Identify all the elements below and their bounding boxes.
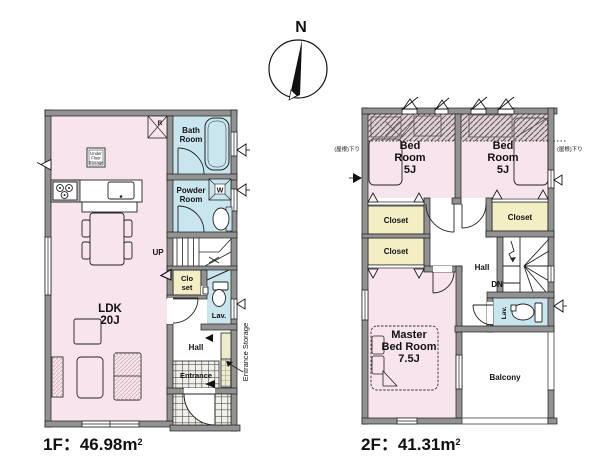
svg-text:7.5J: 7.5J (398, 353, 419, 365)
svg-text:Room: Room (180, 195, 203, 204)
svg-text:Closet: Closet (508, 213, 533, 222)
svg-text:Storage: Storage (89, 160, 104, 165)
svg-text:UP: UP (152, 248, 164, 257)
svg-text:Room: Room (394, 152, 425, 164)
svg-text:W: W (217, 188, 224, 195)
svg-text:(屋根)下り: (屋根)下り (557, 145, 583, 153)
svg-text:Closet: Closet (384, 247, 409, 256)
svg-text:Lav.: Lav. (501, 307, 508, 320)
svg-text:2F：41.31m2: 2F：41.31m2 (361, 435, 461, 454)
svg-text:20J: 20J (100, 315, 119, 327)
svg-text:Entrance: Entrance (180, 371, 212, 380)
svg-text:Master: Master (391, 329, 427, 341)
svg-text:5J: 5J (497, 164, 509, 176)
svg-text:R: R (158, 120, 163, 127)
svg-text:Room: Room (180, 135, 203, 144)
svg-text:Clo: Clo (181, 274, 194, 283)
svg-text:Lav.: Lav. (212, 311, 226, 320)
svg-text:(屋根)下り: (屋根)下り (334, 145, 360, 153)
svg-text:N: N (295, 19, 307, 36)
svg-text:Bed: Bed (400, 140, 421, 152)
svg-text:Entrance Storage: Entrance Storage (241, 323, 250, 381)
svg-text:LDK: LDK (98, 303, 122, 315)
svg-text:Bed: Bed (493, 140, 514, 152)
svg-text:Bed Room: Bed Room (382, 341, 437, 353)
svg-text:Hall: Hall (475, 263, 490, 272)
svg-text:Bath: Bath (182, 126, 200, 135)
svg-text:5J: 5J (404, 164, 416, 176)
svg-text:Room: Room (487, 152, 518, 164)
svg-text:DN: DN (491, 280, 503, 289)
svg-text:Hall: Hall (189, 343, 204, 352)
svg-text:set: set (182, 283, 193, 292)
svg-text:Balcony: Balcony (489, 373, 521, 382)
svg-text:1F：46.98m2: 1F：46.98m2 (43, 435, 143, 454)
svg-text:Powder: Powder (177, 186, 206, 195)
svg-text:Closet: Closet (384, 216, 409, 225)
